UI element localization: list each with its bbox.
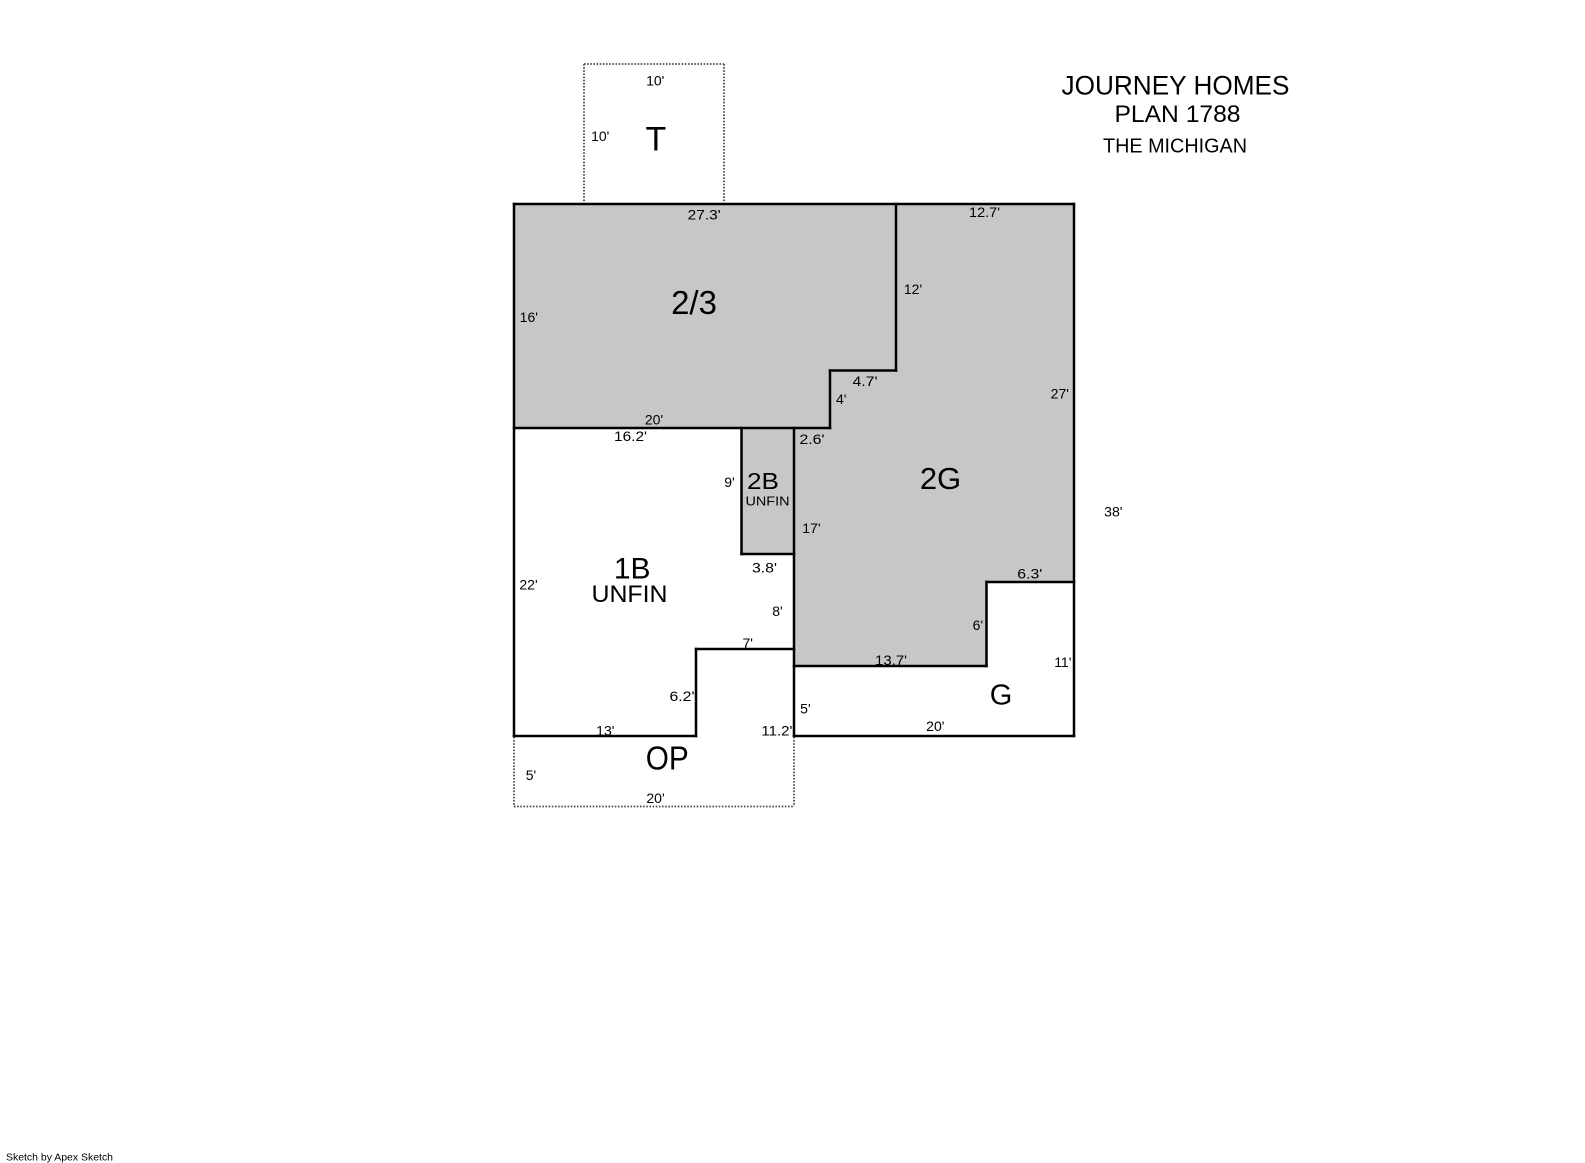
- svg-text:20': 20': [645, 412, 663, 428]
- svg-text:T: T: [646, 121, 667, 159]
- svg-text:4': 4': [836, 391, 846, 407]
- svg-text:3.8': 3.8': [752, 560, 777, 576]
- svg-text:20': 20': [926, 718, 944, 734]
- svg-text:JOURNEY HOMES: JOURNEY HOMES: [1062, 70, 1290, 100]
- svg-text:OP: OP: [646, 739, 689, 776]
- svg-text:10': 10': [591, 128, 609, 144]
- svg-text:5': 5': [800, 701, 810, 717]
- svg-text:2.6': 2.6': [800, 431, 825, 447]
- svg-text:10': 10': [646, 73, 664, 89]
- svg-text:11': 11': [1054, 654, 1071, 670]
- svg-text:6.2': 6.2': [670, 688, 695, 704]
- svg-text:38': 38': [1104, 504, 1122, 520]
- svg-text:2/3: 2/3: [671, 284, 717, 321]
- svg-text:5': 5': [526, 767, 536, 783]
- svg-text:Sketch by Apex Sketch: Sketch by Apex Sketch: [6, 1152, 113, 1163]
- svg-text:9': 9': [724, 474, 734, 490]
- svg-text:20': 20': [646, 790, 664, 806]
- svg-text:6': 6': [973, 617, 983, 633]
- svg-text:THE MICHIGAN: THE MICHIGAN: [1103, 135, 1247, 158]
- svg-text:16.2': 16.2': [614, 428, 647, 444]
- svg-text:22': 22': [519, 577, 537, 593]
- svg-text:27': 27': [1051, 386, 1069, 402]
- svg-text:13': 13': [596, 723, 614, 739]
- svg-text:8': 8': [772, 603, 782, 619]
- svg-text:7': 7': [742, 635, 752, 651]
- svg-text:6.3': 6.3': [1017, 566, 1042, 582]
- svg-text:12.7': 12.7': [969, 204, 1000, 220]
- svg-text:13.7': 13.7': [875, 652, 907, 668]
- svg-text:4.7': 4.7': [853, 373, 878, 389]
- svg-text:17': 17': [802, 520, 820, 536]
- svg-text:11.2': 11.2': [761, 723, 792, 739]
- svg-text:2G: 2G: [920, 461, 961, 496]
- svg-text:G: G: [990, 679, 1013, 711]
- svg-text:2B: 2B: [747, 468, 779, 494]
- svg-text:PLAN 1788: PLAN 1788: [1115, 101, 1241, 128]
- svg-text:12': 12': [904, 281, 922, 297]
- svg-text:16': 16': [520, 309, 538, 325]
- svg-text:UNFIN: UNFIN: [592, 581, 668, 608]
- svg-text:UNFIN: UNFIN: [746, 494, 790, 509]
- svg-text:27.3': 27.3': [688, 207, 721, 223]
